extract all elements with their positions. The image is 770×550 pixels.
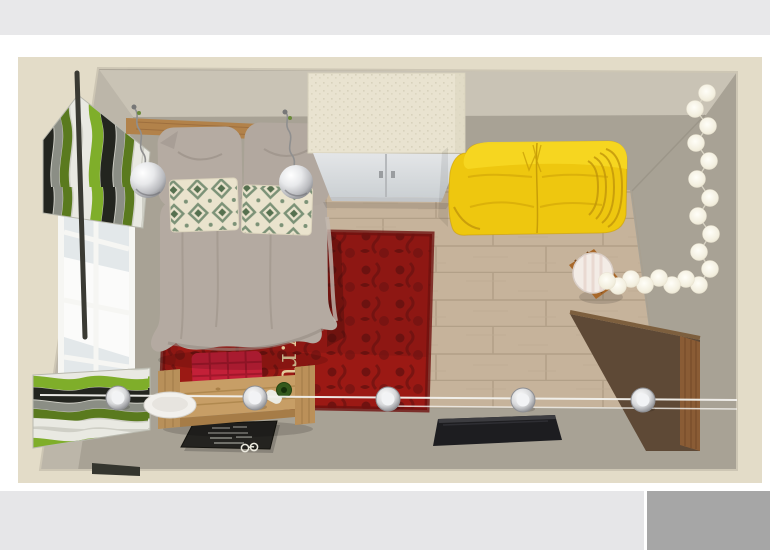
next-image-thumbnail[interactable] <box>647 491 770 550</box>
page-background-lower <box>0 491 644 550</box>
bedroom-top-view: y.ru <box>18 57 762 483</box>
top-page-band <box>0 0 770 35</box>
spotlight-icon <box>376 387 400 411</box>
spotlight-icon <box>243 386 267 410</box>
yellow-sofa <box>438 141 627 235</box>
door-handle-icon <box>391 171 395 178</box>
pendant-lamp-left <box>130 162 166 198</box>
ceiling-hook-icon <box>283 110 288 115</box>
page: y.ru <box>0 0 770 550</box>
spotlight-icon <box>631 388 655 412</box>
room-render-image[interactable]: y.ru <box>18 57 762 483</box>
pendant-lamp-right <box>279 165 313 199</box>
spotlight-icon <box>511 388 535 412</box>
door-handle-icon <box>379 171 383 178</box>
ceiling-hook-icon <box>132 105 137 110</box>
spotlight-icon <box>106 386 130 410</box>
